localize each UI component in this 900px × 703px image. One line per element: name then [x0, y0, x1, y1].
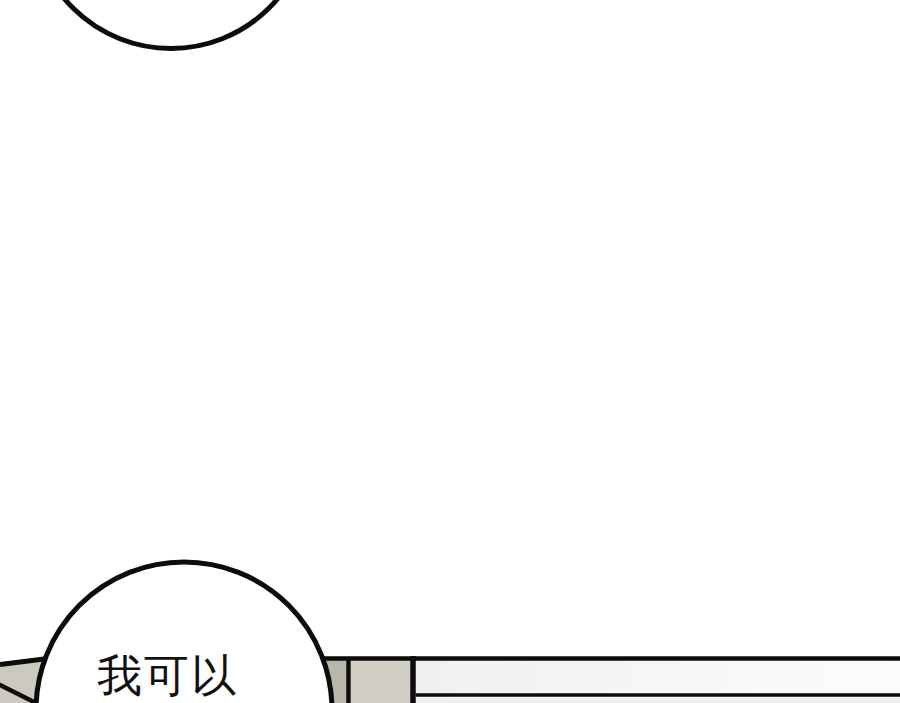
shelf-lower-panel [416, 698, 900, 703]
speech-bubble-text: 我可以 [97, 651, 257, 701]
comic-panel: 我可以 [0, 0, 900, 703]
counter-column-panel [351, 657, 411, 703]
panel-artwork [0, 0, 900, 703]
